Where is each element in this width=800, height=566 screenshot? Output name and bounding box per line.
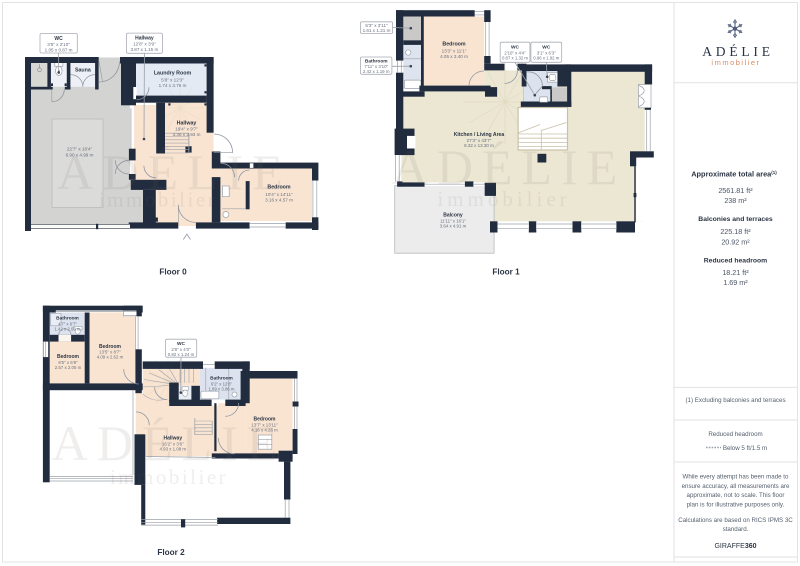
svg-text:ADÉLIE: ADÉLIE	[702, 44, 774, 59]
svg-text:Bedroom: Bedroom	[442, 42, 466, 48]
svg-text:immobilier: immobilier	[99, 188, 217, 212]
svg-text:immobilier: immobilier	[711, 58, 760, 67]
svg-text:standard.: standard.	[723, 526, 749, 533]
svg-text:4.09 x 2.62 m: 4.09 x 2.62 m	[97, 355, 124, 360]
svg-text:0.82 x 1.24 m: 0.82 x 1.24 m	[168, 352, 195, 357]
svg-text:5'8" x 12'3": 5'8" x 12'3"	[161, 78, 184, 83]
svg-text:1.89 x 3.86 m: 1.89 x 3.86 m	[208, 387, 234, 392]
svg-text:3.64 x 4.91 m: 3.64 x 4.91 m	[440, 224, 467, 229]
svg-text:225.18 ft²: 225.18 ft²	[720, 227, 751, 236]
svg-text:238 m²: 238 m²	[724, 196, 747, 205]
svg-text:Reduced headroom: Reduced headroom	[708, 431, 762, 438]
svg-text:3.36 x 2.93 m: 3.36 x 2.93 m	[173, 132, 201, 137]
svg-text:0.87 x 1.32 m: 0.87 x 1.32 m	[502, 56, 528, 61]
svg-text:immobilier: immobilier	[437, 187, 570, 211]
svg-text:19'4" x 9'7": 19'4" x 9'7"	[175, 127, 198, 132]
svg-text:3'5" x 2'10": 3'5" x 2'10"	[47, 42, 70, 47]
svg-text:Reduced headroom: Reduced headroom	[704, 257, 767, 264]
svg-text:0.96 x 1.92 m: 0.96 x 1.92 m	[533, 56, 559, 61]
svg-text:Below 5 ft/1.5 m: Below 5 ft/1.5 m	[723, 445, 767, 452]
svg-text:1.42 x 2.03 m: 1.42 x 2.03 m	[54, 327, 80, 332]
svg-text:4.05 x 3.40 m: 4.05 x 3.40 m	[440, 54, 468, 59]
svg-text:ADÉLIE: ADÉLIE	[52, 415, 287, 471]
svg-text:plan is for illustrative purpo: plan is for illustrative purposes only.	[687, 501, 785, 508]
svg-text:Floor 0: Floor 0	[159, 268, 187, 277]
svg-text:1.05 x 0.87 m: 1.05 x 0.87 m	[45, 47, 73, 52]
svg-text:1.74 x 3.76 m: 1.74 x 3.76 m	[159, 83, 187, 88]
svg-text:Floor 1: Floor 1	[492, 268, 520, 277]
svg-text:1.61 x 1.21 m: 1.61 x 1.21 m	[363, 28, 391, 33]
svg-text:Laundry Room: Laundry Room	[154, 71, 192, 77]
svg-text:While every attempt has been m: While every attempt has been made to	[683, 474, 789, 481]
svg-text:Balcony: Balcony	[443, 212, 463, 218]
svg-text:Balconies and terraces: Balconies and terraces	[698, 216, 773, 223]
svg-text:2561.81 ft²: 2561.81 ft²	[718, 186, 753, 195]
svg-text:2.42 x 1.19 m: 2.42 x 1.19 m	[363, 69, 390, 74]
svg-text:3.87 x 1.15 m: 3.87 x 1.15 m	[130, 47, 158, 52]
svg-text:ensure accuracy, all measureme: ensure accuracy, all measurements are	[682, 483, 790, 490]
svg-text:Approximate total area(1): Approximate total area(1)	[691, 170, 777, 179]
svg-text:12'8" x 3'9": 12'8" x 3'9"	[133, 42, 156, 47]
svg-text:1.69 m²: 1.69 m²	[723, 278, 748, 287]
svg-text:2.57 x 2.05 m: 2.57 x 2.05 m	[55, 365, 82, 370]
svg-text:Sauna: Sauna	[75, 68, 91, 74]
svg-text:approximate, not to scale. Thi: approximate, not to scale. This floor	[687, 492, 785, 499]
svg-text:13'3" x 11'1": 13'3" x 11'1"	[442, 48, 467, 53]
svg-text:Floor 2: Floor 2	[157, 548, 185, 557]
svg-text:18.21 ft²: 18.21 ft²	[722, 268, 749, 277]
svg-text:immobilier: immobilier	[110, 465, 228, 489]
svg-text:(1) Excluding balconies and te: (1) Excluding balconies and terraces	[685, 397, 785, 404]
svg-text:20.92 m²: 20.92 m²	[721, 238, 750, 247]
svg-text:GIRAFFE360: GIRAFFE360	[714, 543, 756, 550]
svg-text:Calculations are based on RICS: Calculations are based on RICS IPMS 3C	[678, 517, 793, 524]
